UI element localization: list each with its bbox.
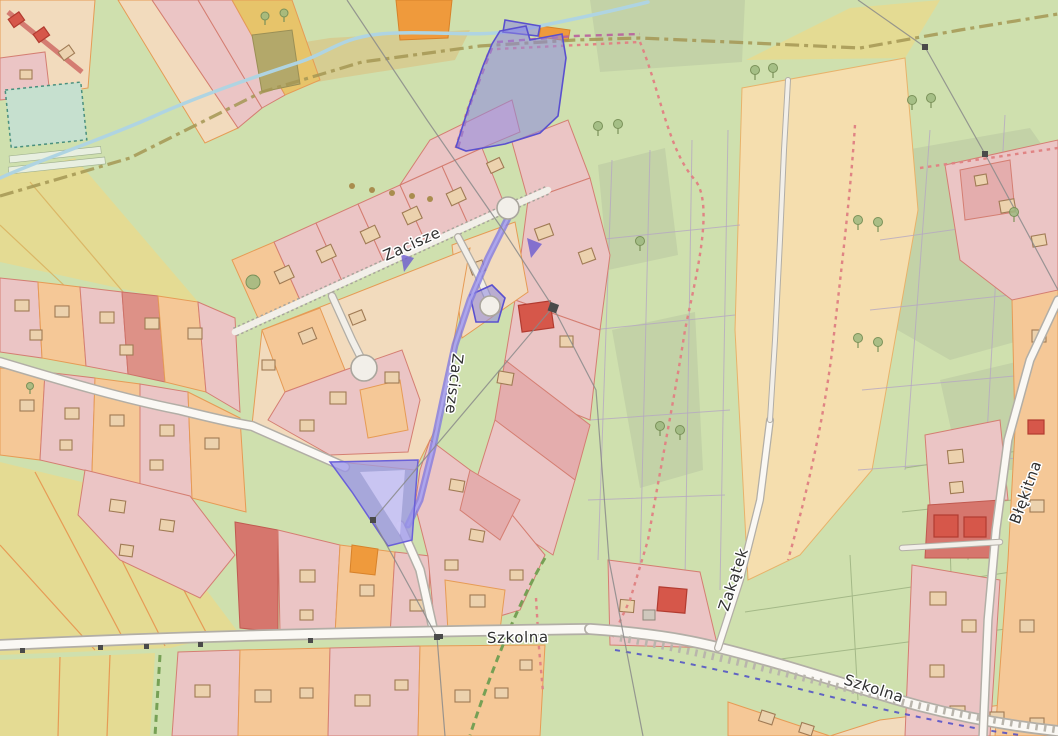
- map-svg[interactable]: Zacisze Zacisze Szkolna Szkolna Zakątek …: [0, 0, 1058, 736]
- street-label-szkolna-west: Szkolna: [487, 628, 549, 647]
- map-canvas[interactable]: Zacisze Zacisze Szkolna Szkolna Zakątek …: [0, 0, 1058, 736]
